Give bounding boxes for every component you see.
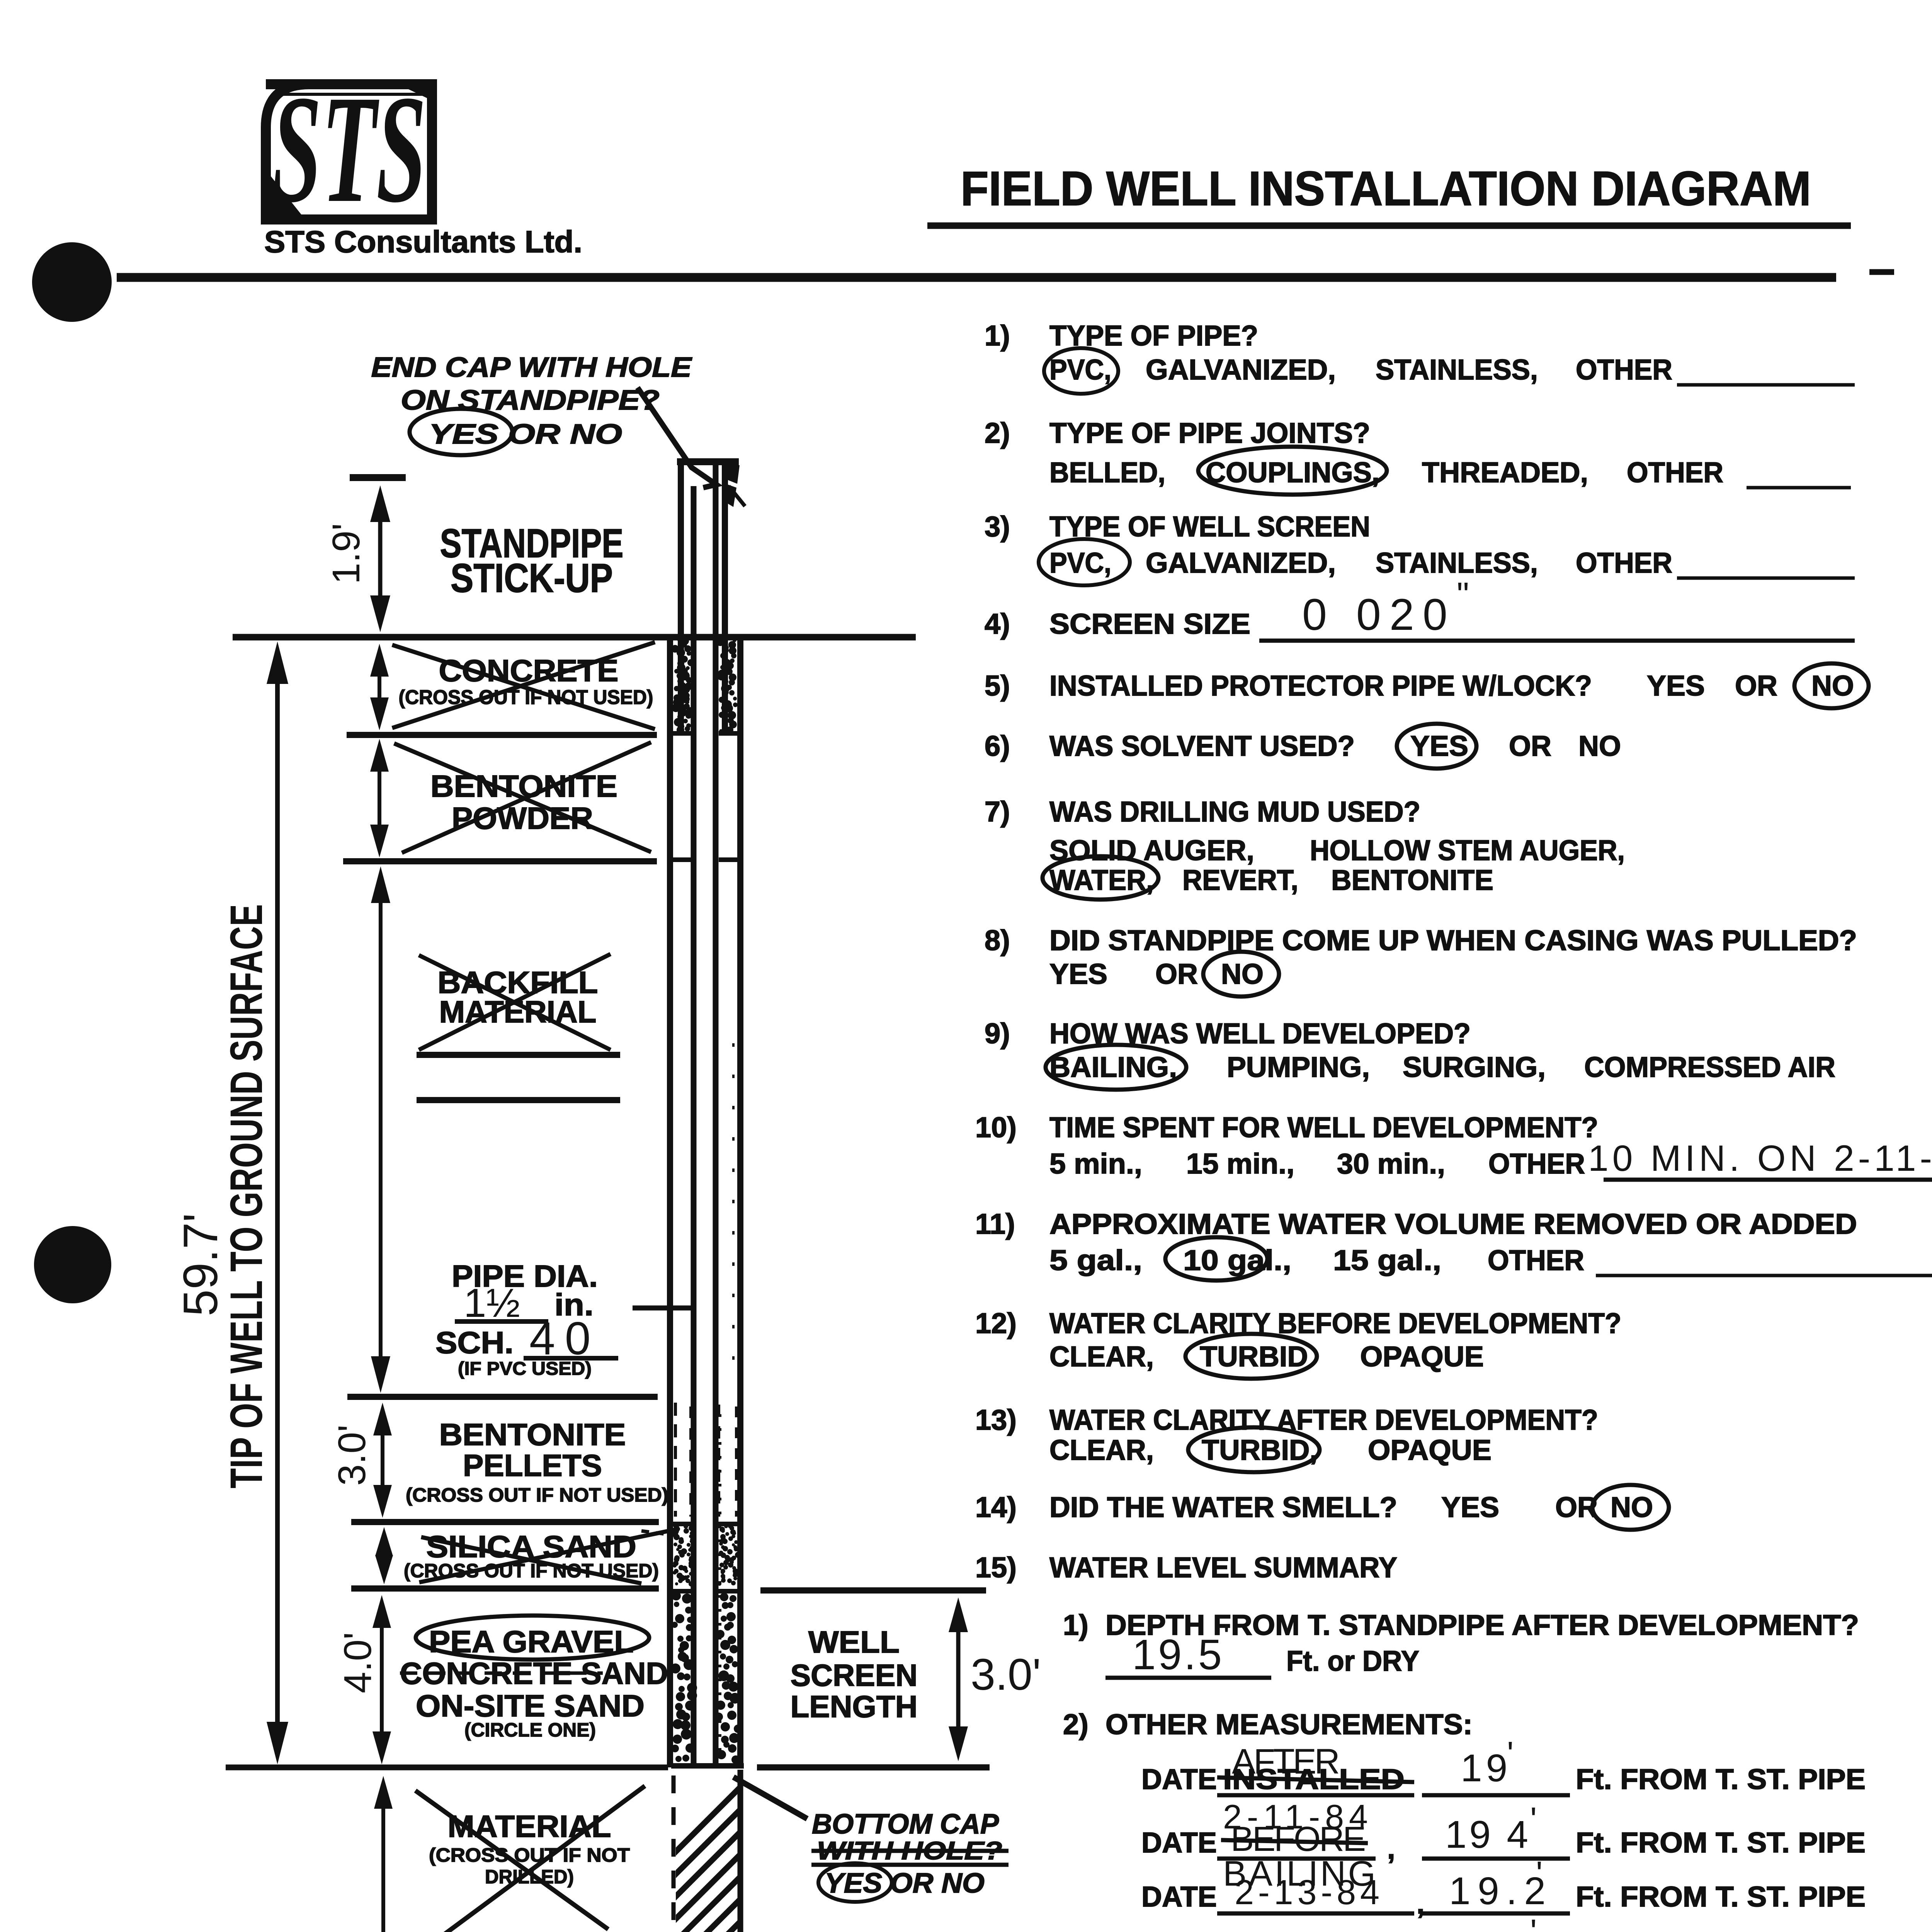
svg-text:5 gal.,: 5 gal.,	[1049, 1244, 1142, 1276]
svg-text:CLEAR,: CLEAR,	[1049, 1434, 1154, 1466]
svg-text:TURBID,: TURBID,	[1202, 1434, 1318, 1466]
svg-text:STAINLESS,: STAINLESS,	[1376, 354, 1538, 386]
svg-text:DATE: DATE	[1141, 1881, 1217, 1913]
svg-text:OTHER: OTHER	[1576, 354, 1672, 386]
svg-text:APPROXIMATE WATER VOLUME REMOV: APPROXIMATE WATER VOLUME REMOVED OR ADDE…	[1049, 1208, 1857, 1240]
svg-text:1): 1)	[1063, 1609, 1088, 1641]
svg-text:CLEAR,: CLEAR,	[1049, 1340, 1154, 1372]
svg-text:TURBID: TURBID	[1200, 1340, 1308, 1372]
svg-text:5 min.,: 5 min.,	[1049, 1148, 1142, 1180]
svg-text:9): 9)	[985, 1017, 1010, 1049]
svg-text:YES: YES	[1049, 958, 1107, 990]
svg-text:DID STANDPIPE COME UP WHEN CAS: DID STANDPIPE COME UP WHEN CASING WAS PU…	[1049, 924, 1857, 956]
svg-text:COMPRESSED AIR: COMPRESSED AIR	[1584, 1051, 1835, 1083]
svg-text:BOTTOM CAP: BOTTOM CAP	[812, 1809, 999, 1840]
svg-text:OR: OR	[1155, 958, 1198, 990]
svg-text:WAS DRILLING MUD USED?: WAS DRILLING MUD USED?	[1049, 796, 1420, 828]
svg-text:7): 7)	[985, 796, 1010, 828]
svg-text:BELLED,: BELLED,	[1049, 456, 1165, 488]
svg-text:REVERT,: REVERT,	[1182, 864, 1298, 896]
svg-text:5): 5)	[985, 670, 1010, 702]
svg-text:TIP OF WELL TO GROUND SURFACE: TIP OF WELL TO GROUND SURFACE	[221, 904, 272, 1488]
svg-text:15 min.,: 15 min.,	[1186, 1148, 1294, 1180]
svg-text:SURGING,: SURGING,	[1403, 1051, 1546, 1083]
svg-text:OTHER: OTHER	[1488, 1244, 1584, 1276]
svg-text:': '	[1223, 1616, 1230, 1657]
svg-text:OTHER MEASUREMENTS:: OTHER MEASUREMENTS:	[1105, 1708, 1473, 1740]
svg-text:SOLID AUGER,: SOLID AUGER,	[1049, 834, 1254, 866]
svg-text:YES: YES	[1410, 730, 1468, 762]
svg-text:19: 19	[1461, 1747, 1511, 1790]
svg-text:OR: OR	[1735, 670, 1777, 702]
svg-text:1½: 1½	[464, 1281, 520, 1326]
svg-text:10 MIN. ON 2-11-: 10 MIN. ON 2-11-	[1588, 1138, 1932, 1179]
svg-text:STAINLESS,: STAINLESS,	[1376, 547, 1538, 579]
svg-text:8): 8)	[985, 924, 1010, 956]
svg-text:2): 2)	[1063, 1708, 1088, 1740]
svg-text:WAS SOLVENT USED?: WAS SOLVENT USED?	[1049, 730, 1355, 762]
svg-text:TYPE OF PIPE JOINTS?: TYPE OF PIPE JOINTS?	[1049, 417, 1370, 449]
svg-text:HOLLOW STEM AUGER,: HOLLOW STEM AUGER,	[1310, 834, 1625, 866]
svg-text:PVC,: PVC,	[1049, 354, 1111, 386]
svg-text:19 4: 19 4	[1445, 1813, 1528, 1856]
svg-text:59.7': 59.7'	[174, 1213, 228, 1316]
svg-text:30 min.,: 30 min.,	[1337, 1148, 1445, 1180]
svg-text:WATER LEVEL SUMMARY: WATER LEVEL SUMMARY	[1049, 1551, 1397, 1583]
svg-text:DID THE WATER SMELL?: DID THE WATER SMELL?	[1049, 1491, 1397, 1523]
svg-text:OPAQUE: OPAQUE	[1360, 1340, 1484, 1372]
svg-text:Ft. or DRY: Ft. or DRY	[1286, 1645, 1419, 1677]
svg-text:THREADED,: THREADED,	[1422, 456, 1588, 488]
svg-text:15): 15)	[975, 1551, 1017, 1583]
svg-text:(CROSS OUT IF NOT: (CROSS OUT IF NOT	[429, 1844, 630, 1866]
svg-text:14): 14)	[975, 1491, 1017, 1523]
svg-text:WELL: WELL	[808, 1625, 900, 1659]
svg-text:SCREEN SIZE: SCREEN SIZE	[1049, 608, 1250, 640]
svg-text:3.0': 3.0'	[330, 1425, 374, 1486]
svg-text:TYPE OF WELL SCREEN: TYPE OF WELL SCREEN	[1049, 510, 1370, 543]
svg-text:FIELD WELL INSTALLATION DIAGRA: FIELD WELL INSTALLATION DIAGRAM	[961, 162, 1811, 216]
svg-text:BAILING,: BAILING,	[1049, 1051, 1177, 1083]
svg-text:WATER CLARITY AFTER DEVELOPMEN: WATER CLARITY AFTER DEVELOPMENT?	[1049, 1404, 1598, 1436]
svg-text:LENGTH: LENGTH	[791, 1689, 918, 1724]
svg-text:END CAP WITH HOLE: END CAP WITH HOLE	[371, 352, 692, 383]
svg-text:WATER,: WATER,	[1049, 864, 1154, 896]
svg-text:4.0': 4.0'	[336, 1632, 379, 1693]
svg-text:INSTALLED PROTECTOR PIPE W/LOC: INSTALLED PROTECTOR PIPE W/LOCK?	[1049, 670, 1592, 702]
svg-text:NO: NO	[1578, 730, 1621, 762]
svg-text:6): 6)	[985, 730, 1010, 762]
svg-text:Ft. FROM T. ST. PIPE: Ft. FROM T. ST. PIPE	[1576, 1881, 1866, 1913]
svg-text:13): 13)	[975, 1404, 1017, 1436]
svg-text:': '	[1530, 1801, 1537, 1839]
svg-text:": "	[1457, 576, 1469, 614]
svg-text:OPAQUE: OPAQUE	[1368, 1434, 1492, 1466]
svg-text:3): 3)	[985, 510, 1010, 543]
svg-text:STICK-UP: STICK-UP	[451, 556, 613, 601]
svg-text:NO: NO	[1221, 958, 1264, 990]
svg-text:1): 1)	[985, 320, 1010, 352]
svg-text:0 020: 0 020	[1302, 590, 1456, 639]
svg-text:': '	[1536, 1855, 1543, 1893]
svg-text:4): 4)	[985, 608, 1010, 640]
svg-text:(IF PVC USED): (IF PVC USED)	[458, 1359, 592, 1379]
svg-text:12): 12)	[975, 1307, 1017, 1339]
svg-text:DATE: DATE	[1141, 1763, 1217, 1795]
svg-text:SCREEN: SCREEN	[791, 1658, 918, 1692]
svg-text:Ft. FROM T. ST. PIPE: Ft. FROM T. ST. PIPE	[1576, 1827, 1866, 1859]
svg-text:DATE: DATE	[1141, 1827, 1217, 1859]
svg-text:PELLETS: PELLETS	[463, 1448, 602, 1483]
svg-text:,: ,	[1387, 1833, 1395, 1865]
svg-text:': '	[1530, 1913, 1537, 1932]
svg-text:GALVANIZED,: GALVANIZED,	[1146, 354, 1336, 386]
svg-text:': '	[1507, 1735, 1514, 1774]
svg-text:COUPLINGS,: COUPLINGS,	[1206, 456, 1379, 488]
svg-text:YES OR NO: YES OR NO	[825, 1868, 985, 1899]
svg-text:2): 2)	[985, 417, 1010, 449]
svg-text:YES: YES	[1647, 670, 1705, 702]
svg-text:BENTONITE: BENTONITE	[439, 1417, 626, 1452]
svg-text:1.9': 1.9'	[325, 523, 368, 584]
svg-text:(CROSS OUT IF NOT USED): (CROSS OUT IF NOT USED)	[406, 1484, 668, 1506]
svg-text:NO: NO	[1611, 1491, 1653, 1523]
svg-text:11): 11)	[975, 1208, 1015, 1240]
svg-text:ON-SITE SAND: ON-SITE SAND	[416, 1689, 645, 1723]
svg-text:YES OR NO: YES OR NO	[429, 419, 622, 450]
svg-text:OTHER: OTHER	[1627, 456, 1723, 488]
svg-text:SCH.: SCH.	[435, 1325, 514, 1360]
svg-text:OTHER: OTHER	[1488, 1148, 1585, 1180]
svg-text:(CIRCLE ONE): (CIRCLE ONE)	[464, 1719, 596, 1741]
svg-text:YES: YES	[1441, 1491, 1499, 1523]
svg-text:Ft. FROM T. ST. PIPE: Ft. FROM T. ST. PIPE	[1576, 1763, 1866, 1795]
svg-text:10 gal.,: 10 gal.,	[1183, 1244, 1291, 1276]
svg-text:OTHER: OTHER	[1576, 547, 1672, 579]
svg-text:PVC,: PVC,	[1049, 547, 1111, 579]
svg-text:PUMPING,: PUMPING,	[1227, 1051, 1370, 1083]
svg-text:STS Consultants Ltd.: STS Consultants Ltd.	[264, 224, 582, 259]
svg-text:19.2: 19.2	[1449, 1869, 1546, 1913]
svg-text:19.5: 19.5	[1132, 1631, 1222, 1679]
svg-text:BENTONITE: BENTONITE	[1331, 864, 1493, 896]
svg-text:10): 10)	[975, 1111, 1017, 1143]
svg-text:WATER CLARITY BEFORE DEVELOPME: WATER CLARITY BEFORE DEVELOPMENT?	[1049, 1307, 1621, 1339]
svg-text:NO: NO	[1811, 670, 1854, 702]
svg-text:OR: OR	[1509, 730, 1551, 762]
svg-text:3.0': 3.0'	[971, 1650, 1041, 1699]
svg-text:15 gal.,: 15 gal.,	[1333, 1244, 1441, 1276]
svg-text:19.0: 19.0	[1443, 1927, 1540, 1932]
svg-text:GALVANIZED,: GALVANIZED,	[1146, 547, 1336, 579]
svg-text:TIME SPENT FOR WELL DEVELOPMEN: TIME SPENT FOR WELL DEVELOPMENT?	[1049, 1111, 1598, 1143]
